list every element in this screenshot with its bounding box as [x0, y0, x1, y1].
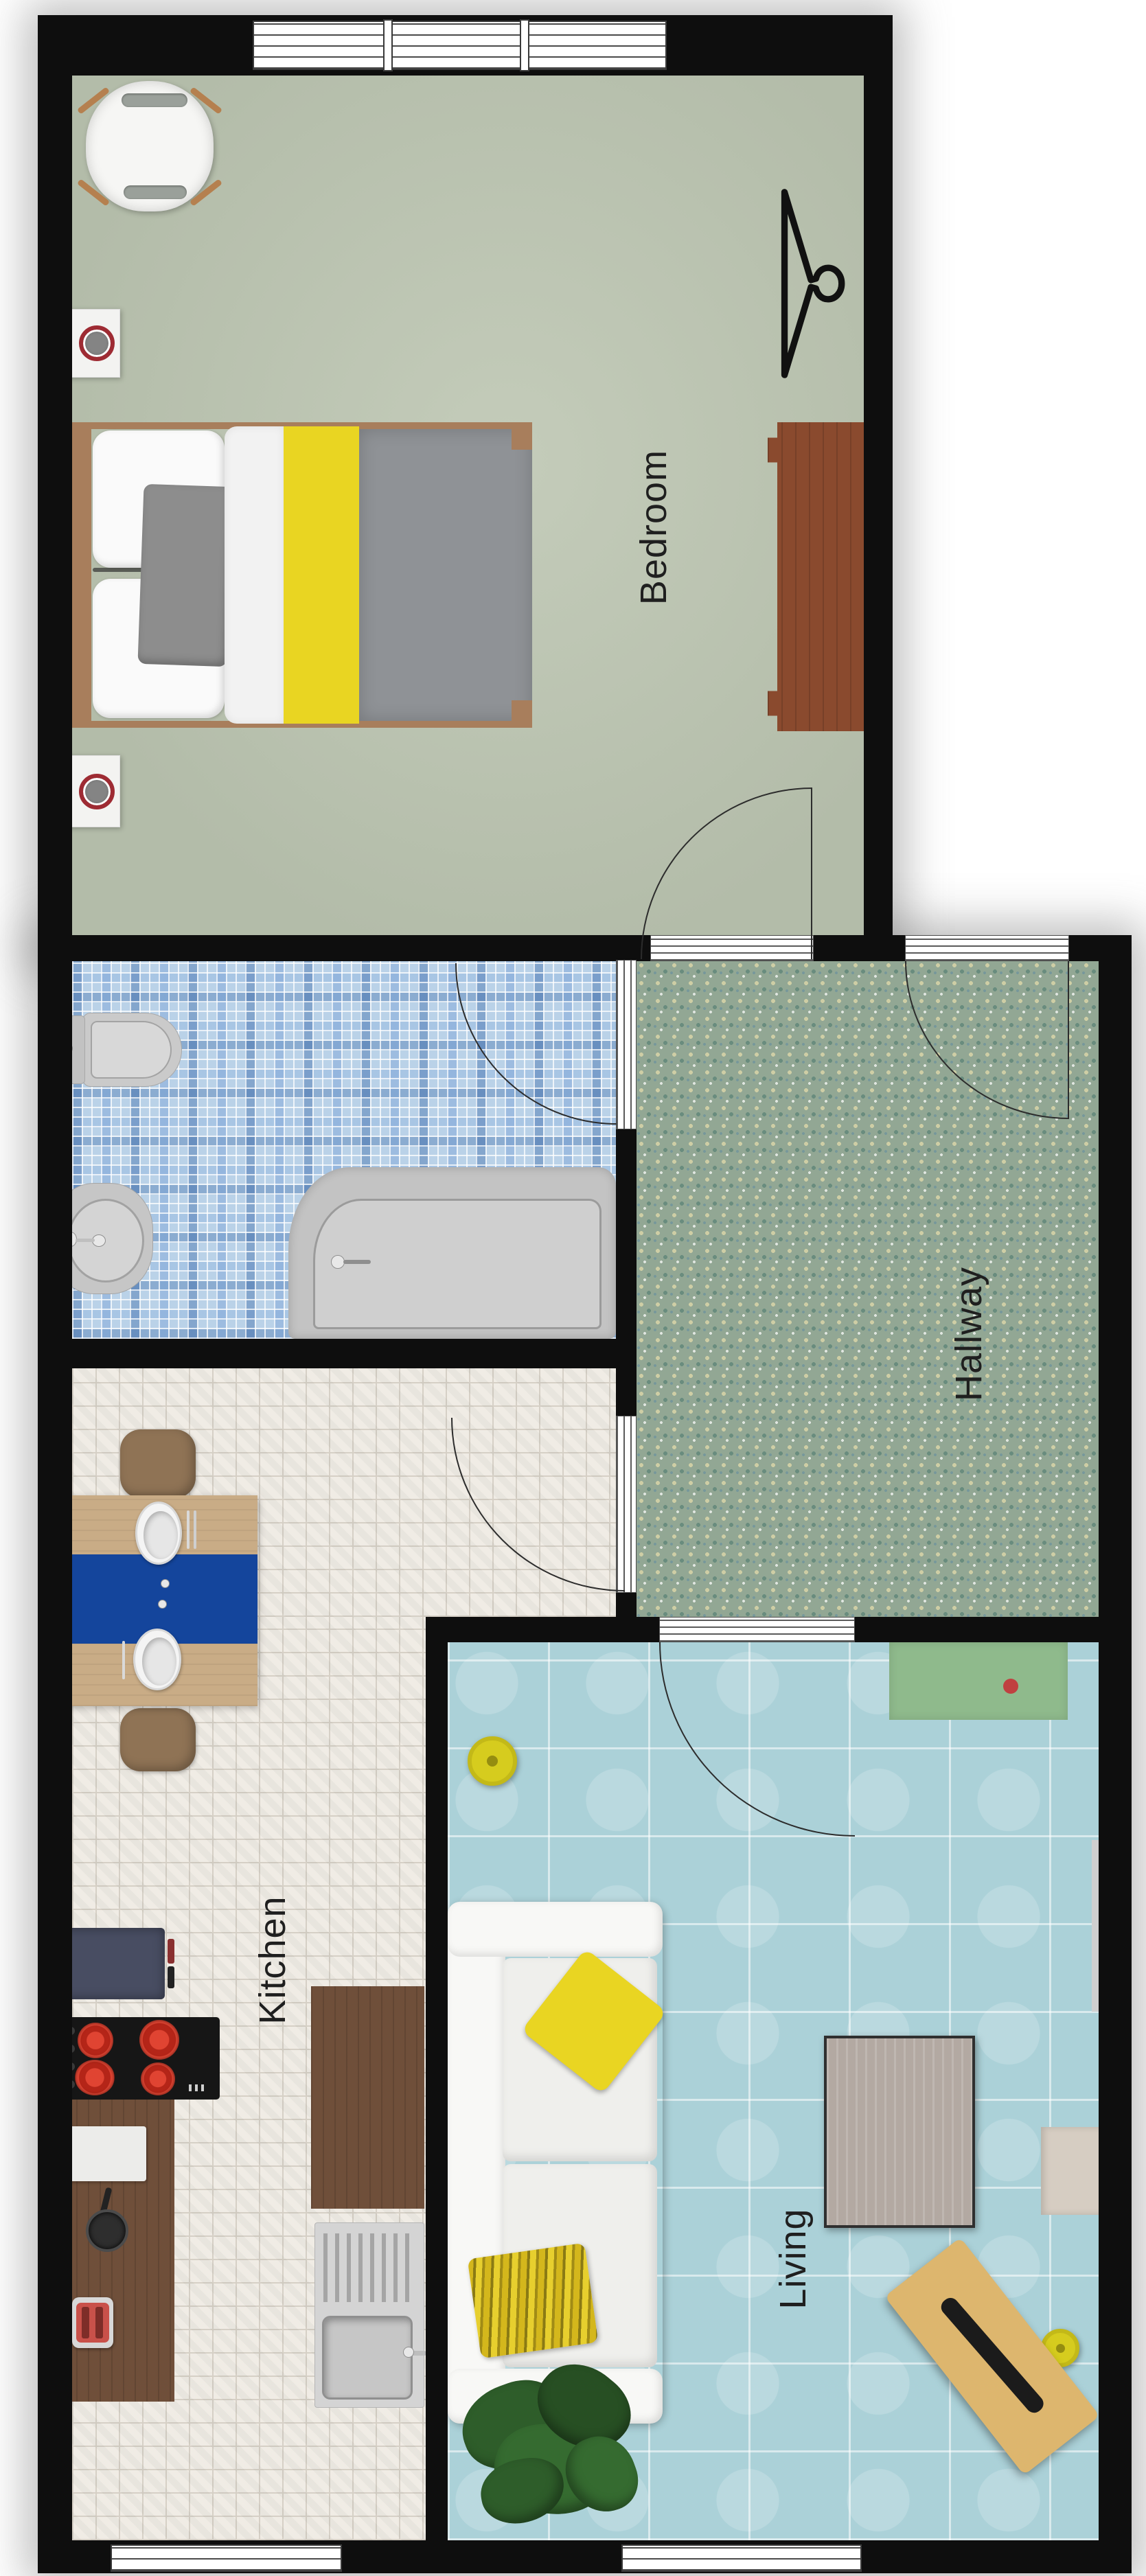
bathtub-basin — [313, 1199, 601, 1329]
cutlery — [122, 1641, 125, 1679]
double-bed[interactable] — [72, 422, 532, 728]
speaker-ring — [79, 774, 115, 809]
cooktop-controls — [189, 2084, 207, 2091]
clothes-hanger-icon[interactable] — [775, 173, 846, 394]
dining-chair-top[interactable] — [120, 1429, 196, 1498]
cutlery — [194, 1510, 196, 1549]
bed-blanket-white — [225, 426, 284, 724]
pepper-shaker — [158, 1600, 167, 1609]
toaster-slot — [95, 2307, 103, 2338]
sink-unit[interactable] — [314, 2222, 424, 2408]
toilet-seat — [91, 1021, 172, 1079]
kitchen-label: Kitchen — [251, 1896, 294, 2024]
bedroom-window[interactable] — [253, 21, 667, 70]
burner — [139, 2020, 179, 2060]
armchair-shell — [86, 81, 214, 211]
dining-table[interactable] — [59, 1495, 257, 1706]
cutting-board — [62, 2126, 146, 2181]
refrigerator-handle — [168, 1939, 174, 1964]
potted-plant[interactable] — [461, 2363, 634, 2521]
refrigerator-handle — [168, 1966, 174, 1988]
toaster — [72, 2297, 113, 2348]
kitchen-window[interactable] — [111, 2544, 342, 2572]
living-door-threshold[interactable] — [659, 1617, 855, 1642]
floor-plan: Bedroom Hallway Kitchen Living — [0, 0, 1146, 2576]
sofa-pillow-zigzag — [468, 2243, 599, 2359]
wall-bathroom-bottom — [38, 1339, 637, 1368]
coffee-table[interactable] — [824, 2036, 975, 2228]
armchair-handle-slot — [124, 185, 187, 199]
bed-blanket-yellow — [284, 426, 359, 724]
living-window[interactable] — [621, 2544, 862, 2572]
armchair[interactable] — [86, 81, 214, 211]
sofa[interactable] — [448, 1902, 663, 2424]
side-bench[interactable] — [1041, 2127, 1101, 2215]
entry-door-threshold[interactable] — [905, 935, 1069, 961]
dining-chair-bottom[interactable] — [120, 1708, 196, 1771]
bedroom-window-mullion — [383, 19, 393, 71]
bed-headboard — [72, 422, 91, 728]
hallway-label: Hallway — [948, 1267, 990, 1401]
bed-accent-pillow — [137, 484, 233, 667]
sofa-armrest-top — [448, 1902, 663, 1957]
dresser[interactable] — [768, 422, 864, 731]
plate-inner — [142, 1637, 176, 1686]
speaker-ring — [79, 325, 115, 361]
doormat-dot — [1003, 1679, 1018, 1694]
plate-inner — [144, 1511, 178, 1559]
cutlery — [187, 1510, 190, 1549]
wall-left — [38, 15, 72, 2573]
bed-post — [512, 422, 532, 450]
toilet[interactable] — [55, 1013, 182, 1087]
bathtub-drain — [331, 1255, 345, 1269]
kitchen-sink — [322, 2316, 413, 2400]
wall-kitchen-living — [426, 1617, 448, 2573]
drainboard-grooves — [323, 2233, 417, 2302]
sink-faucet-knob — [403, 2347, 414, 2358]
salt-shaker — [161, 1579, 170, 1588]
burner — [78, 2023, 113, 2058]
plate — [133, 1629, 181, 1690]
armchair-handle-slot — [122, 93, 187, 107]
bathtub[interactable] — [288, 1167, 616, 1339]
living-label: Living — [772, 2208, 814, 2309]
burner — [141, 2062, 175, 2095]
bathroom-door-threshold[interactable] — [616, 960, 637, 1129]
bathtub-faucet — [343, 1260, 371, 1264]
bedroom-label: Bedroom — [632, 450, 675, 605]
disc-center — [1056, 2344, 1065, 2353]
bedroom-window-mullion — [520, 19, 529, 71]
burner — [75, 2060, 115, 2095]
kitchen-island[interactable] — [311, 1986, 424, 2209]
toaster-slot — [82, 2307, 89, 2338]
pot — [86, 2209, 128, 2252]
bed-post — [512, 700, 532, 728]
plate — [135, 1502, 182, 1565]
bidet-faucet-bar — [76, 1239, 95, 1242]
stool-center — [487, 1756, 498, 1767]
doormat[interactable] — [889, 1642, 1068, 1720]
cooktop[interactable] — [65, 2017, 220, 2100]
bed-duvet — [359, 429, 532, 721]
round-stool[interactable] — [468, 1736, 517, 1786]
wall-bedroom-right — [864, 15, 893, 961]
wall-right — [1099, 935, 1132, 2573]
